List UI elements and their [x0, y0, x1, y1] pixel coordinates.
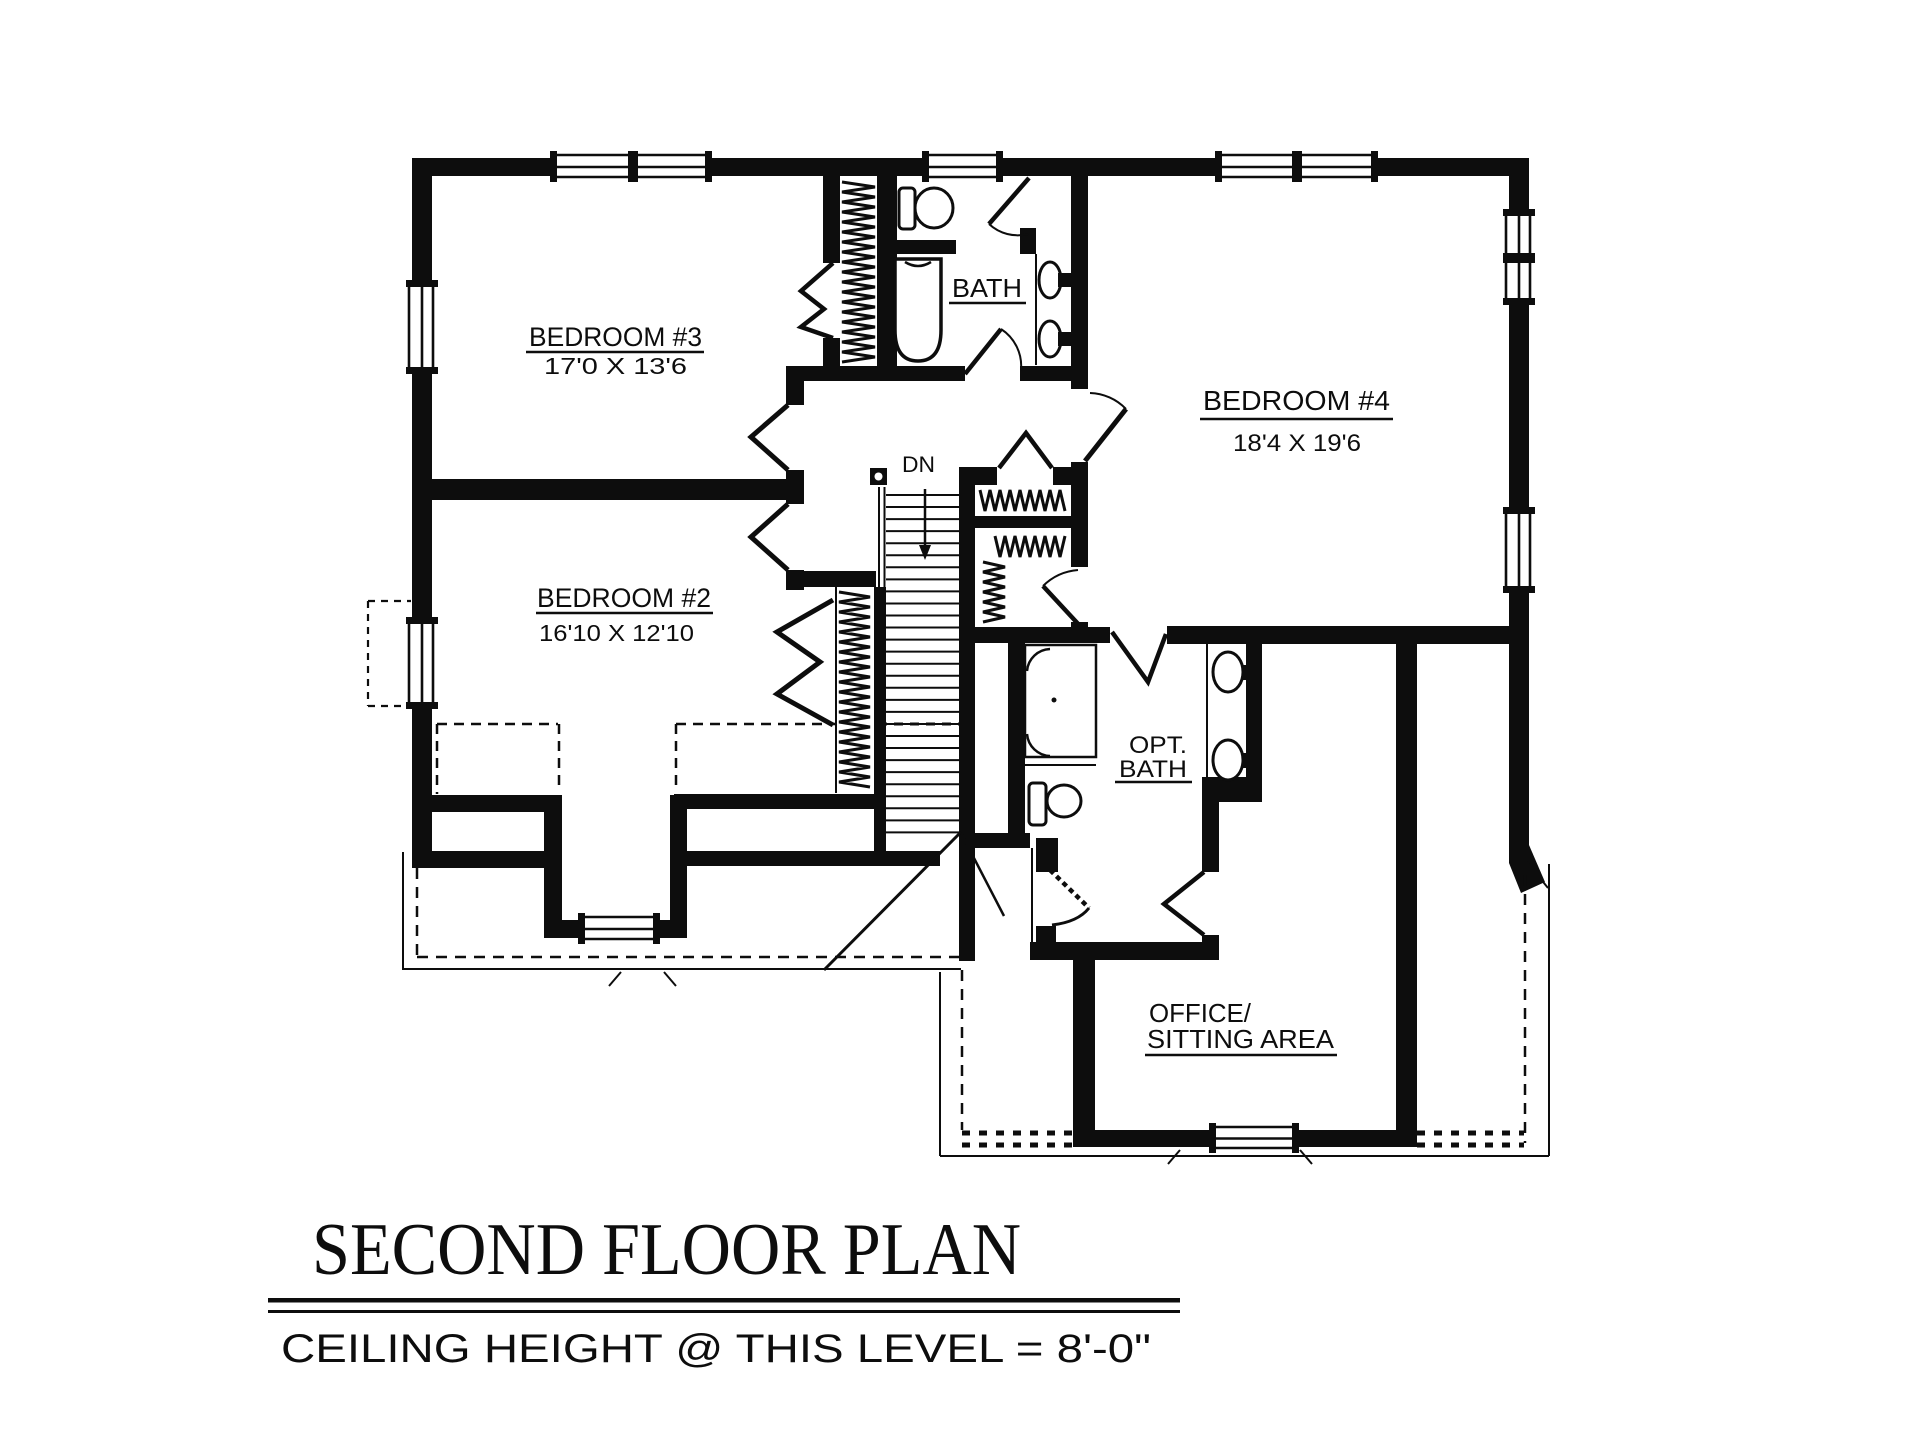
svg-text:BATH: BATH: [952, 273, 1022, 303]
svg-text:CEILING HEIGHT @ THIS LEVEL =: CEILING HEIGHT @ THIS LEVEL = 8'-0": [281, 1327, 1151, 1371]
svg-text:BATH: BATH: [1119, 756, 1187, 783]
svg-text:18'4 X 19'6: 18'4 X 19'6: [1233, 430, 1361, 457]
svg-text:BEDROOM #2: BEDROOM #2: [537, 583, 711, 613]
svg-text:BEDROOM #3: BEDROOM #3: [529, 322, 702, 352]
svg-text:SITTING AREA: SITTING AREA: [1147, 1024, 1335, 1054]
svg-text:SECOND FLOOR PLAN: SECOND FLOOR PLAN: [312, 1209, 1021, 1291]
svg-text:16'10 X 12'10: 16'10 X 12'10: [539, 620, 694, 646]
svg-text:DN: DN: [902, 452, 935, 477]
svg-text:17'0 X 13'6: 17'0 X 13'6: [544, 353, 687, 379]
svg-text:OPT.: OPT.: [1129, 732, 1187, 759]
svg-text:BEDROOM #4: BEDROOM #4: [1203, 385, 1390, 416]
